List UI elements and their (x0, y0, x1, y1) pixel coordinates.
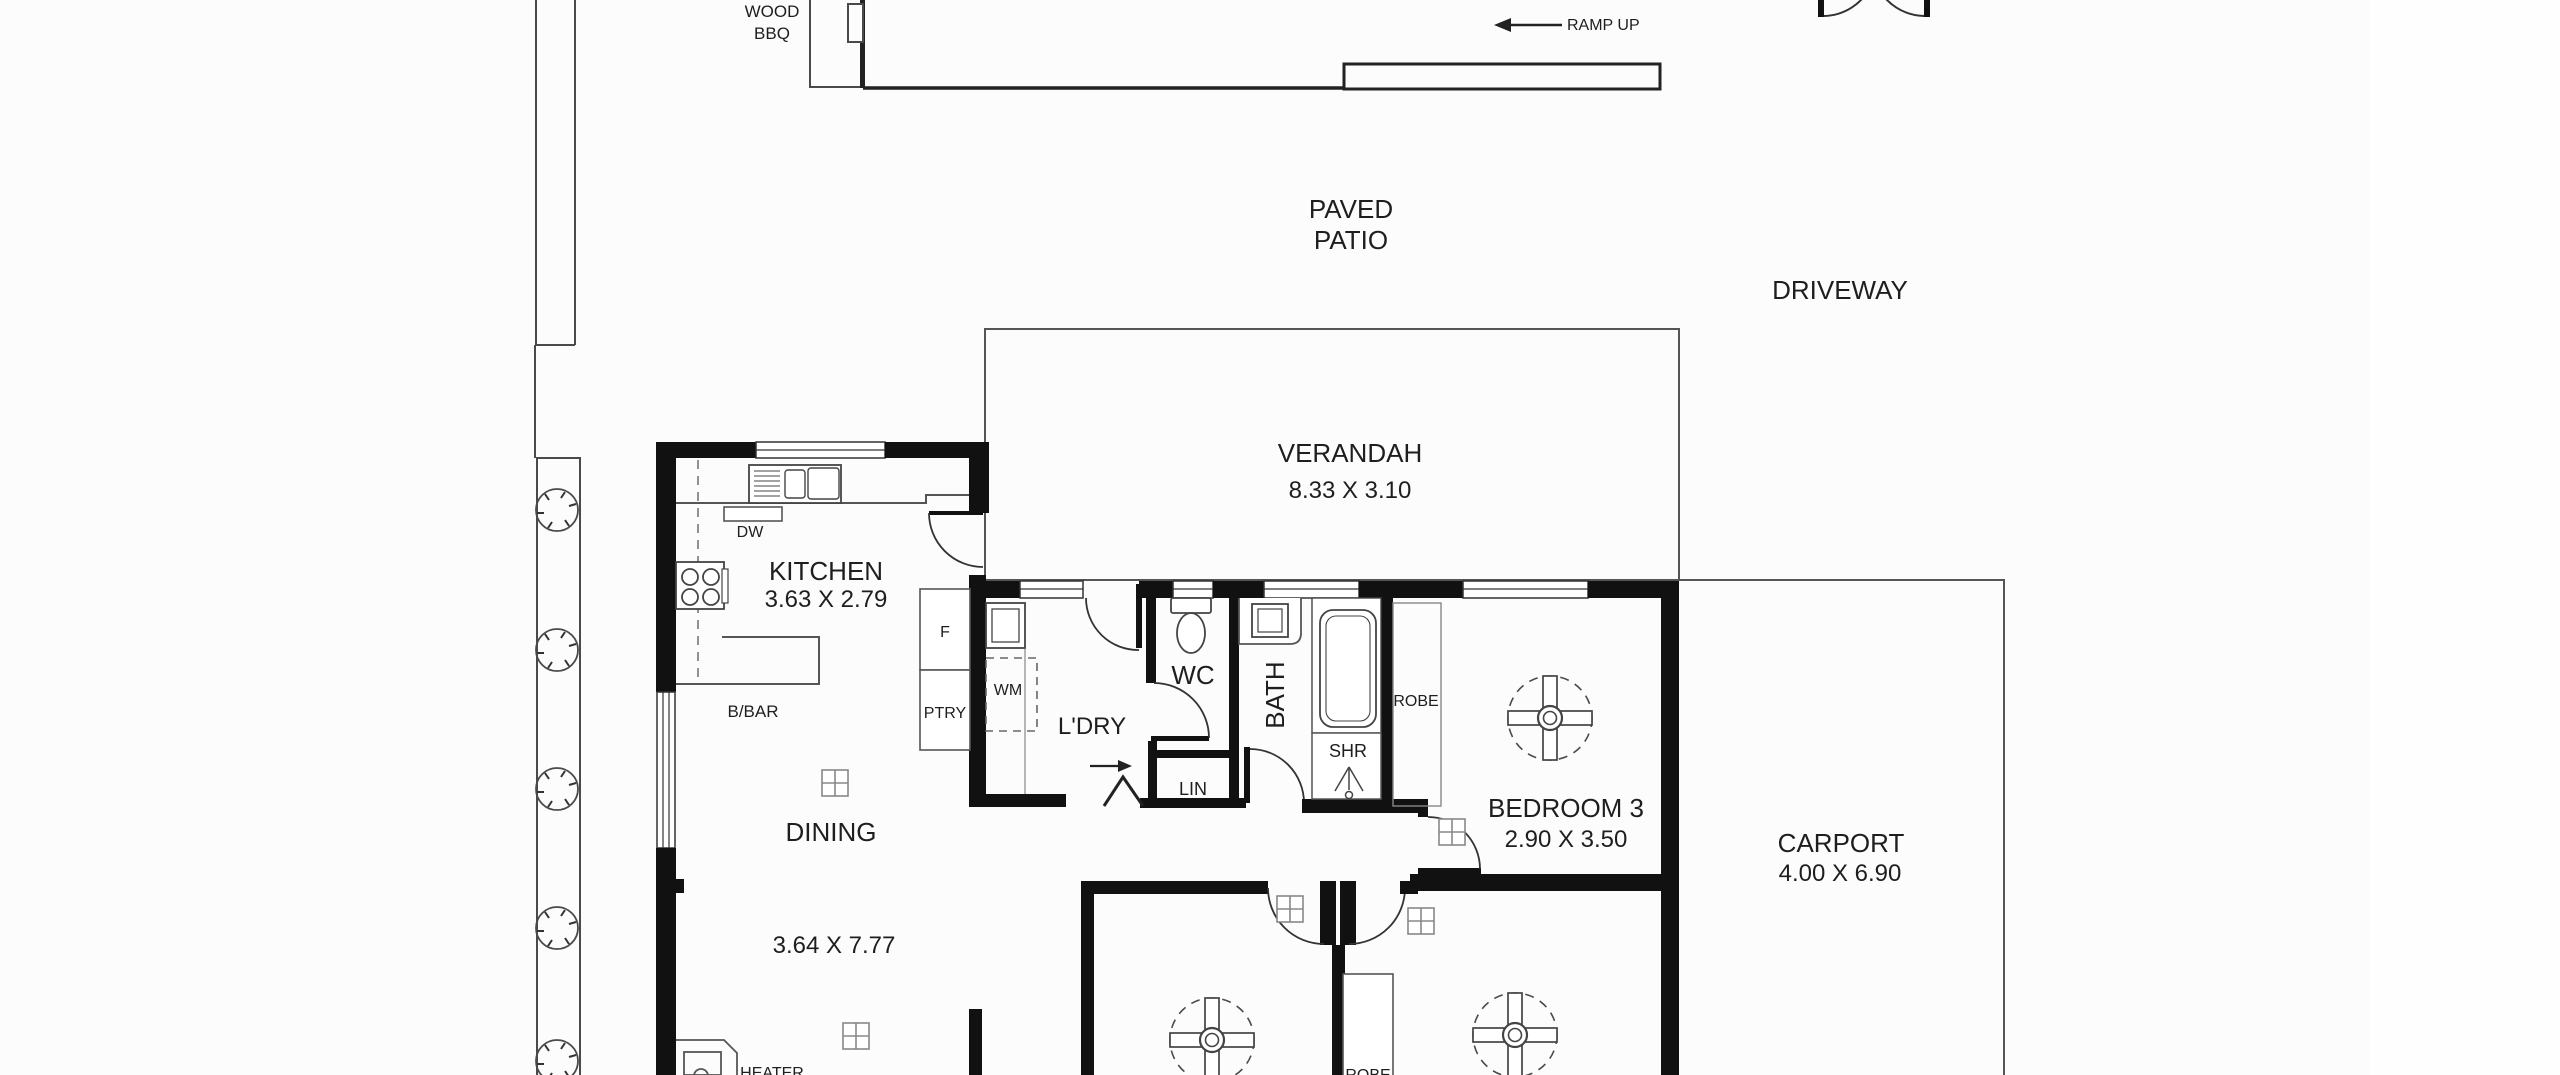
svg-text:BEDROOM 3: BEDROOM 3 (1488, 793, 1644, 823)
svg-text:DINING: DINING (786, 817, 877, 847)
svg-text:L'DRY: L'DRY (1058, 713, 1126, 740)
svg-text:3.63 X 2.79: 3.63 X 2.79 (765, 586, 888, 613)
svg-text:SHR: SHR (1329, 741, 1367, 761)
svg-text:8.33 X 3.10: 8.33 X 3.10 (1289, 477, 1412, 504)
svg-text:ROBE: ROBE (1393, 693, 1438, 710)
svg-text:4.00 X 6.90: 4.00 X 6.90 (1779, 860, 1902, 887)
svg-text:PATIO: PATIO (1314, 225, 1388, 255)
svg-text:CARPORT: CARPORT (1778, 828, 1905, 858)
svg-text:VERANDAH: VERANDAH (1278, 438, 1422, 468)
svg-text:DRIVEWAY: DRIVEWAY (1772, 275, 1908, 305)
svg-text:F: F (940, 624, 950, 641)
svg-text:B/BAR: B/BAR (727, 702, 778, 721)
svg-text:2.90 X 3.50: 2.90 X 3.50 (1505, 826, 1628, 853)
svg-text:DW: DW (737, 524, 765, 541)
svg-text:WM: WM (994, 682, 1022, 699)
svg-text:KITCHEN: KITCHEN (769, 556, 883, 586)
svg-text:BATH: BATH (1260, 661, 1290, 728)
svg-text:PTRY: PTRY (924, 705, 967, 722)
svg-text:3.64 X 7.77: 3.64 X 7.77 (773, 932, 896, 959)
svg-text:BBQ: BBQ (754, 24, 790, 43)
svg-text:RAMP UP: RAMP UP (1567, 17, 1640, 34)
svg-text:WC: WC (1171, 660, 1214, 690)
svg-text:ROBE: ROBE (1345, 1067, 1390, 1075)
svg-text:LIN: LIN (1179, 779, 1207, 799)
svg-text:HEATER: HEATER (740, 1065, 804, 1075)
svg-text:PAVED: PAVED (1309, 194, 1393, 224)
svg-text:WOOD: WOOD (745, 2, 800, 21)
